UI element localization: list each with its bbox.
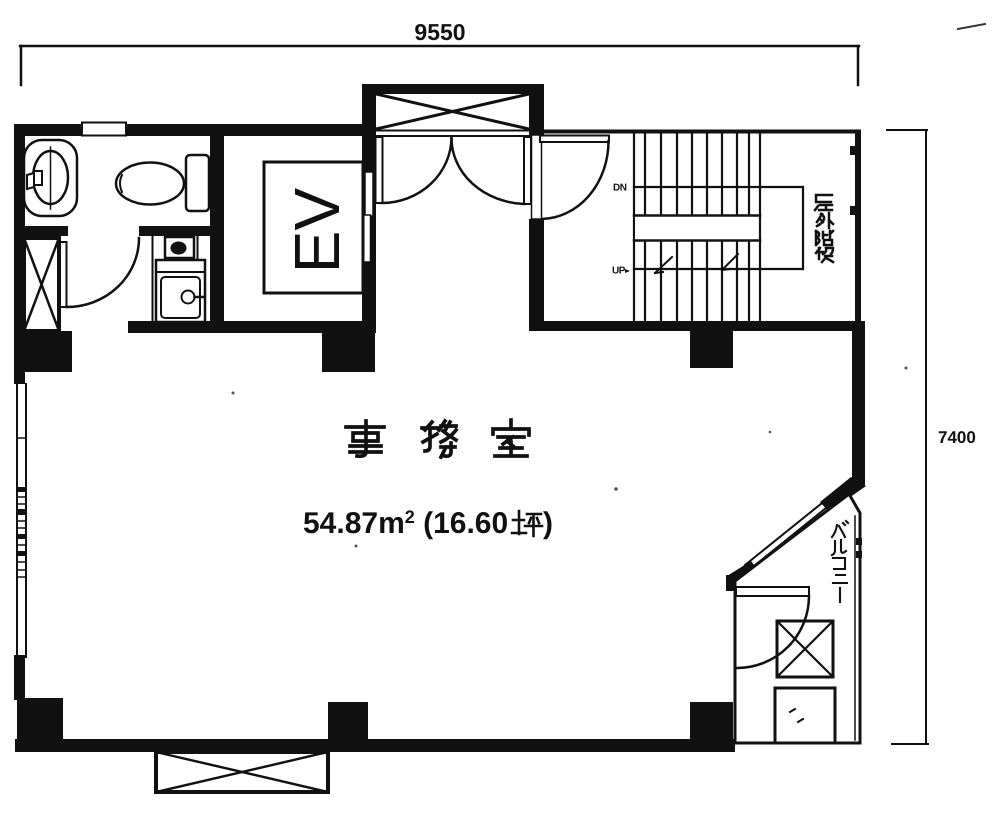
svg-text:7400: 7400 bbox=[938, 428, 976, 447]
svg-text:EV: EV bbox=[281, 188, 353, 274]
svg-text:DN: DN bbox=[613, 183, 627, 194]
svg-text:9550: 9550 bbox=[414, 19, 465, 45]
svg-text:): ) bbox=[543, 507, 553, 540]
svg-text:UP: UP bbox=[612, 266, 626, 277]
